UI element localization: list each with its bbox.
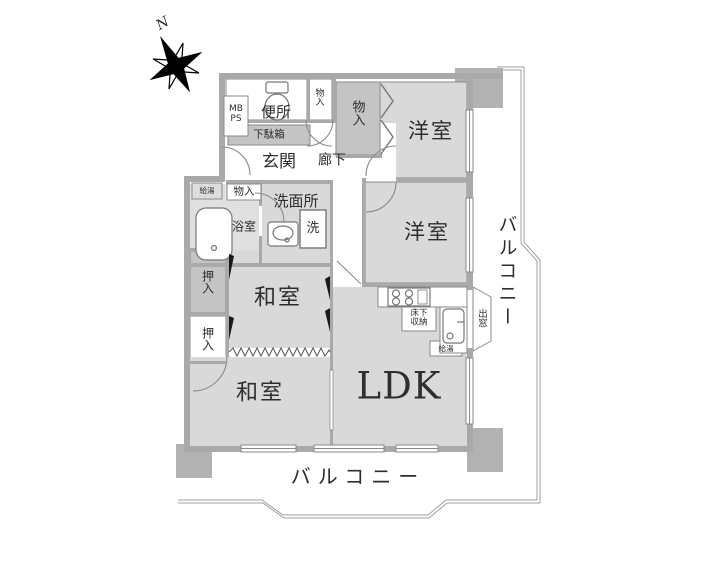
kitchen-sink-icon: [443, 309, 464, 343]
hallway-label: 廊下: [318, 154, 346, 169]
sliding-door-slit: [330, 370, 333, 430]
closet-top-label: 物入: [313, 88, 326, 106]
bathtub-icon: [196, 208, 232, 260]
water-heater-bath-label: 給湯: [200, 187, 215, 195]
western-room-1-label: 洋室: [408, 120, 454, 142]
bay-window-label: 出窓: [474, 309, 488, 328]
wash-basin-icon: [268, 222, 298, 246]
western-room-2-label: 洋室: [404, 221, 450, 243]
entrance-label: 玄関: [262, 154, 296, 172]
toilet-label: 便所: [261, 105, 291, 121]
washroom-label: 洗面所: [273, 194, 318, 210]
window-right-2: [466, 198, 473, 272]
window-right-1: [466, 110, 473, 172]
water-heater-kitchen-label: 給湯: [439, 345, 454, 353]
window-bottom-3: [396, 445, 438, 452]
floor-plan: N 便所 玄関 廊下 洋室 洋室 洗面所 浴室 和室 和室 LDK 物入 物入 …: [0, 0, 704, 562]
stove-icon: [388, 288, 430, 306]
closet-wash-label: 物入: [234, 186, 255, 197]
underfloor-storage-label: 床下 収納: [410, 310, 427, 329]
meter-box-label: MB PS: [229, 105, 243, 125]
compass-icon: [130, 20, 222, 112]
shoe-cabinet-label: 下駄箱: [253, 129, 285, 140]
washing-machine-label: 洗: [306, 222, 319, 236]
oshiire-lower-label: 押入: [200, 327, 217, 351]
window-bottom-1: [241, 445, 296, 452]
window-bottom-2: [314, 445, 384, 452]
balcony-right-label: バルコニー: [494, 215, 521, 330]
japanese-room-1-label: 和室: [254, 286, 302, 309]
oshiire-upper-label: 押入: [200, 270, 217, 294]
ldk-label: LDK: [357, 368, 442, 407]
bathroom-label: 浴室: [232, 221, 256, 234]
closet-hall-label: 物入: [348, 100, 367, 126]
balcony-bottom-label: バルコニー: [291, 467, 426, 488]
japanese-room-2-label: 和室: [236, 381, 284, 404]
window-right-3: [466, 358, 473, 424]
